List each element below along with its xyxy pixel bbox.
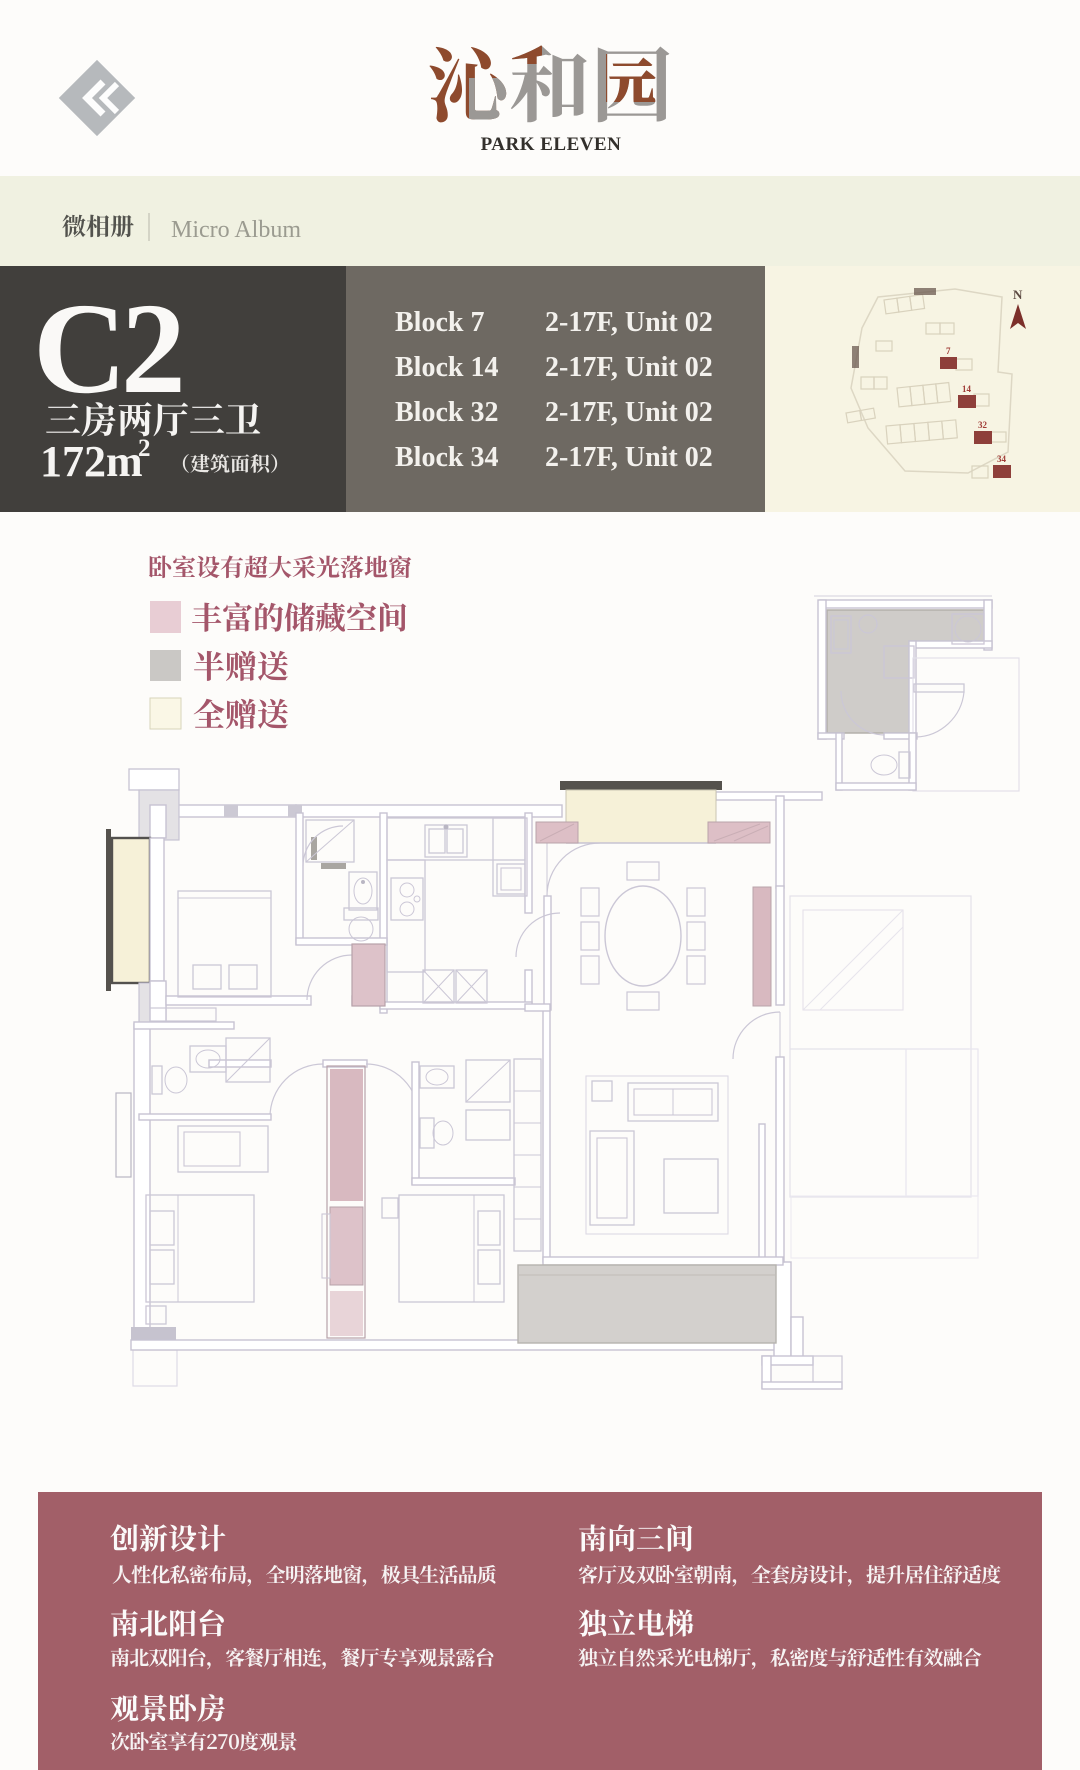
- svg-text:Micro Album: Micro Album: [171, 217, 301, 243]
- svg-text:2-17F, Unit 02: 2-17F, Unit 02: [545, 442, 713, 473]
- svg-text:2-17F, Unit 02: 2-17F, Unit 02: [545, 352, 713, 383]
- svg-text:Block 32: Block 32: [395, 397, 498, 428]
- svg-text:32: 32: [978, 420, 988, 430]
- svg-text:2-17F, Unit 02: 2-17F, Unit 02: [545, 397, 713, 428]
- svg-text:34: 34: [997, 454, 1007, 464]
- svg-text:7: 7: [946, 346, 951, 356]
- svg-text:Block 7: Block 7: [395, 307, 484, 338]
- svg-text:N: N: [1013, 287, 1023, 302]
- svg-text:Block 14: Block 14: [395, 352, 498, 383]
- svg-text:Block 34: Block 34: [395, 442, 498, 473]
- svg-text:14: 14: [962, 384, 972, 394]
- svg-text:2: 2: [138, 435, 151, 462]
- svg-text:C2: C2: [33, 277, 181, 421]
- svg-text:2-17F, Unit 02: 2-17F, Unit 02: [545, 307, 713, 338]
- svg-text:172m: 172m: [40, 437, 143, 486]
- svg-text:PARK ELEVEN: PARK ELEVEN: [481, 134, 622, 155]
